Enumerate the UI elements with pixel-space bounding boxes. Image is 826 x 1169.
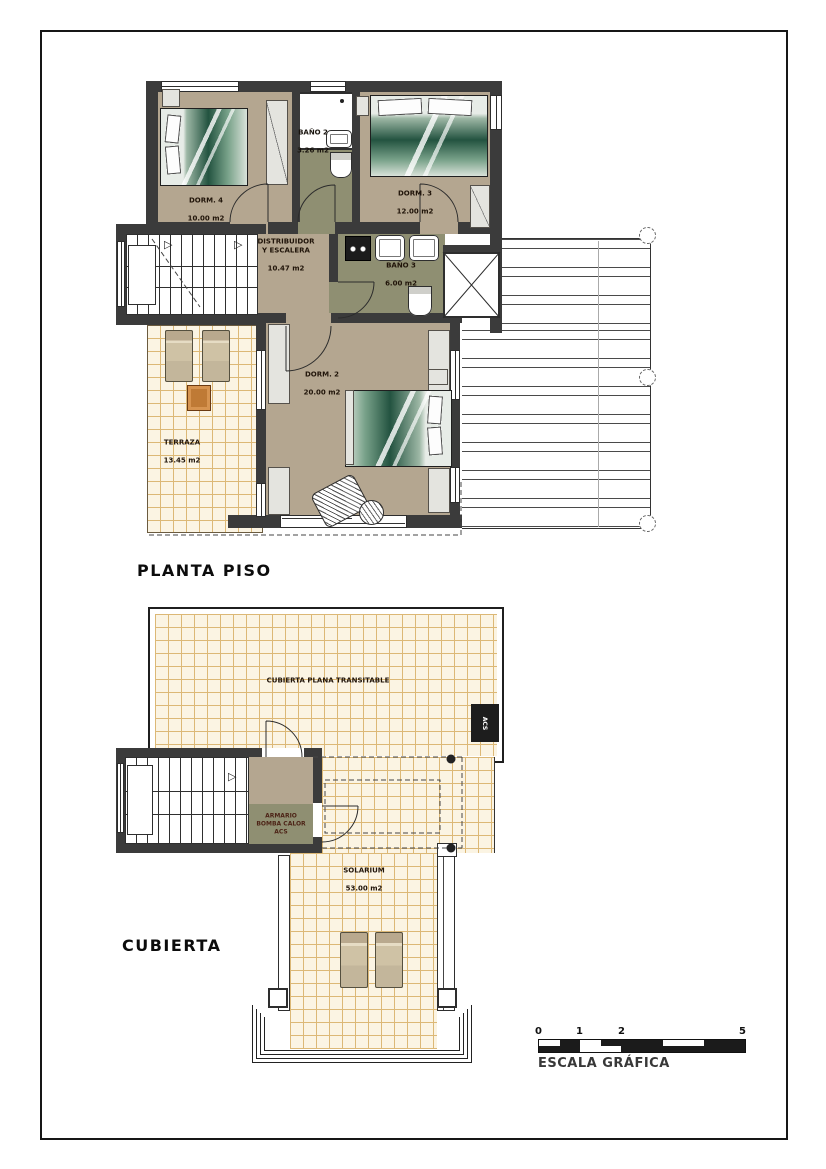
room-area: 6.00 m2	[385, 280, 417, 289]
room-name: BAÑO 3	[385, 261, 417, 270]
pergola-post-marker	[639, 515, 656, 532]
nightstand	[356, 96, 369, 116]
room-label-dorm4: DORM. 4 10.00 m2	[188, 187, 225, 232]
pillow	[427, 427, 443, 456]
washer-icon	[345, 236, 371, 261]
door-gap-armario	[313, 803, 322, 837]
room-label-dorm3: DORM. 3 12.00 m2	[397, 180, 434, 225]
pergola-beams-upper	[502, 238, 651, 331]
bed-footboard	[345, 390, 354, 465]
room-label-bano3: BAÑO 3 6.00 m2	[385, 252, 417, 297]
scale-segment	[539, 1046, 580, 1052]
room-name: TERRAZA	[164, 438, 201, 447]
room-area: 53.00 m2	[343, 885, 385, 894]
room-area: 10.47 m2	[257, 265, 314, 274]
wall-segment	[116, 748, 262, 757]
room-area: 10.00 m2	[188, 215, 225, 224]
room-label-distribuidor: DISTRIBUIDOR Y ESCALERA 10.47 m2	[257, 229, 314, 284]
pillow	[428, 98, 473, 116]
stair-landing	[128, 245, 156, 305]
shower-drain-icon	[340, 99, 344, 103]
wall-segment	[443, 245, 500, 252]
wall-segment	[116, 315, 266, 325]
pergola-beams-lower	[462, 330, 651, 529]
bano3-shower	[443, 252, 500, 318]
room-name: DORM. 4	[188, 196, 225, 205]
pillow	[378, 98, 423, 116]
wardrobe	[266, 100, 288, 185]
window	[256, 483, 266, 517]
nightstand	[162, 89, 180, 107]
planta-piso-plan: ▷ ▷	[116, 75, 666, 545]
room-name: SOLARIUM	[343, 866, 385, 875]
scale-bar-row	[539, 1046, 745, 1052]
window	[490, 95, 502, 130]
door-gap-dorm2	[286, 313, 331, 323]
pillar	[437, 843, 457, 857]
wall-segment	[313, 748, 322, 853]
solarium-edge-rail	[264, 1017, 460, 1051]
room-area: 3.26 m2	[297, 147, 329, 156]
scale-segment	[580, 1046, 621, 1052]
stair-direction-arrow-icon: ▷	[234, 239, 242, 250]
graphic-scale: 0 1 2 5 ESCALA GRÁFICA	[538, 1026, 750, 1078]
nightstand	[428, 369, 448, 385]
pillow	[165, 145, 181, 174]
sun-lounger	[165, 330, 193, 382]
planta-piso-title: PLANTA PISO	[137, 561, 272, 580]
room-name: BAÑO 2	[297, 128, 329, 137]
window	[450, 467, 460, 503]
wall-segment	[116, 844, 322, 853]
wardrobe	[470, 185, 490, 228]
sink-icon	[326, 130, 352, 148]
sun-lounger	[202, 330, 230, 382]
sun-lounger	[375, 932, 403, 988]
room-label-bano2: BAÑO 2 3.26 m2	[297, 119, 329, 164]
window	[256, 350, 266, 410]
door-gap-bano3	[329, 282, 338, 314]
wall-segment	[146, 81, 158, 234]
scale-tick: 0	[535, 1026, 542, 1037]
room-area: 12.00 m2	[397, 208, 434, 217]
room-area: 13.45 m2	[164, 457, 201, 466]
window	[310, 81, 346, 92]
toilet-icon	[330, 152, 352, 178]
door-gap-roof	[262, 748, 304, 757]
room-name: DISTRIBUIDOR Y ESCALERA	[257, 238, 314, 256]
pillow	[165, 114, 182, 143]
scale-title: ESCALA GRÁFICA	[538, 1056, 670, 1071]
sun-lounger	[340, 932, 368, 988]
acs-unit-label: ACS	[481, 717, 488, 730]
wardrobe	[268, 467, 290, 515]
stair-direction-arrow-icon: ▷	[228, 771, 236, 782]
stair-direction-arrow-icon: ▷	[164, 239, 172, 250]
room-label-dorm2: DORM. 2 20.00 m2	[304, 361, 341, 406]
pergola-post-marker	[639, 227, 656, 244]
armario-label: ARMARIO BOMBA CALOR ACS	[256, 812, 305, 835]
cubierta-title: CUBIERTA	[122, 936, 221, 955]
wardrobe	[428, 468, 450, 513]
landing-floor	[249, 757, 313, 804]
stair-landing	[127, 765, 153, 835]
room-name: DORM. 2	[304, 370, 341, 379]
pillow	[427, 396, 443, 425]
floor-plan-sheet: ▷ ▷	[0, 0, 826, 1169]
wardrobe	[268, 324, 290, 404]
window	[117, 763, 124, 833]
scale-segment	[621, 1046, 745, 1052]
scale-tick: 2	[618, 1026, 625, 1037]
room-label-terraza: TERRAZA 13.45 m2	[164, 429, 201, 474]
roof-tile-area	[322, 757, 495, 853]
room-area: 20.00 m2	[304, 389, 341, 398]
window	[117, 241, 125, 307]
cubierta-plan: ACS ▷	[116, 603, 510, 1073]
scale-tick: 5	[739, 1026, 746, 1037]
scale-bar	[538, 1039, 746, 1053]
solarium-label: SOLARIUM 53.00 m2	[343, 857, 385, 902]
roof-label: CUBIERTA PLANA TRANSITABLE	[267, 676, 390, 685]
acs-unit-box: ACS	[471, 704, 499, 742]
pergola-edge-line	[598, 241, 599, 527]
terrace-table	[187, 385, 211, 411]
scale-tick: 1	[576, 1026, 583, 1037]
room-name: DORM. 3	[397, 189, 434, 198]
pergola-post-marker	[639, 369, 656, 386]
round-table	[359, 500, 384, 525]
